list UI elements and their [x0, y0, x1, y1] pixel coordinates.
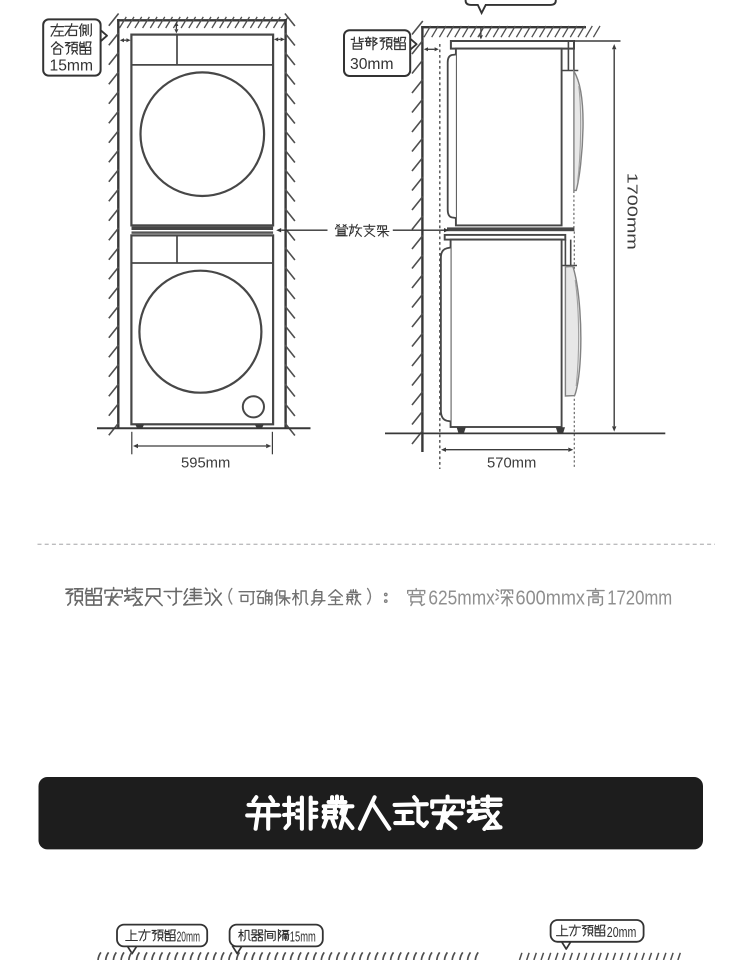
svg-text:600mmx: 600mmx: [516, 587, 586, 609]
svg-text:1700mm: 1700mm: [623, 173, 640, 250]
svg-text:1720mm: 1720mm: [607, 587, 672, 609]
svg-text:15mm: 15mm: [50, 57, 94, 74]
svg-text:30mm: 30mm: [350, 56, 394, 73]
svg-text:20mm: 20mm: [177, 930, 201, 946]
svg-text:20mm: 20mm: [607, 925, 637, 941]
svg-text:595mm: 595mm: [181, 455, 230, 471]
svg-text:570mm: 570mm: [487, 455, 536, 471]
svg-text:625mmx: 625mmx: [428, 587, 494, 609]
svg-text:15mm: 15mm: [290, 930, 316, 946]
